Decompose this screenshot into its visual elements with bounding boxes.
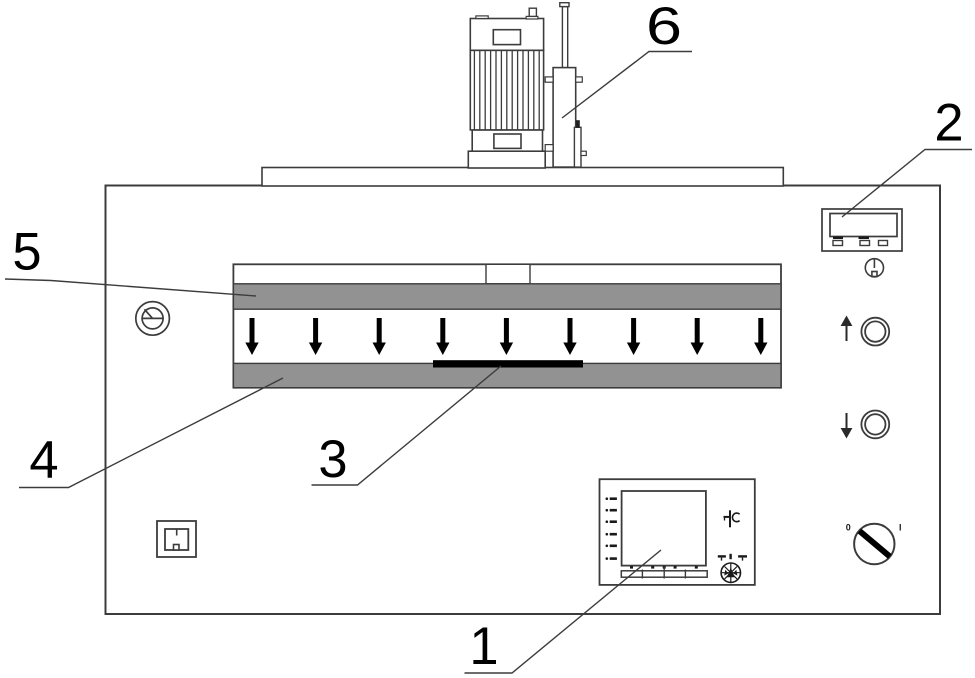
svg-text:4: 4 xyxy=(29,431,58,490)
svg-text:5: 5 xyxy=(12,223,41,282)
svg-text:6: 6 xyxy=(646,0,682,56)
svg-text:I: I xyxy=(899,523,902,533)
svg-text:3: 3 xyxy=(318,430,347,489)
svg-text:2: 2 xyxy=(934,94,963,153)
svg-text:1: 1 xyxy=(469,617,498,676)
svg-text:0: 0 xyxy=(846,523,851,533)
